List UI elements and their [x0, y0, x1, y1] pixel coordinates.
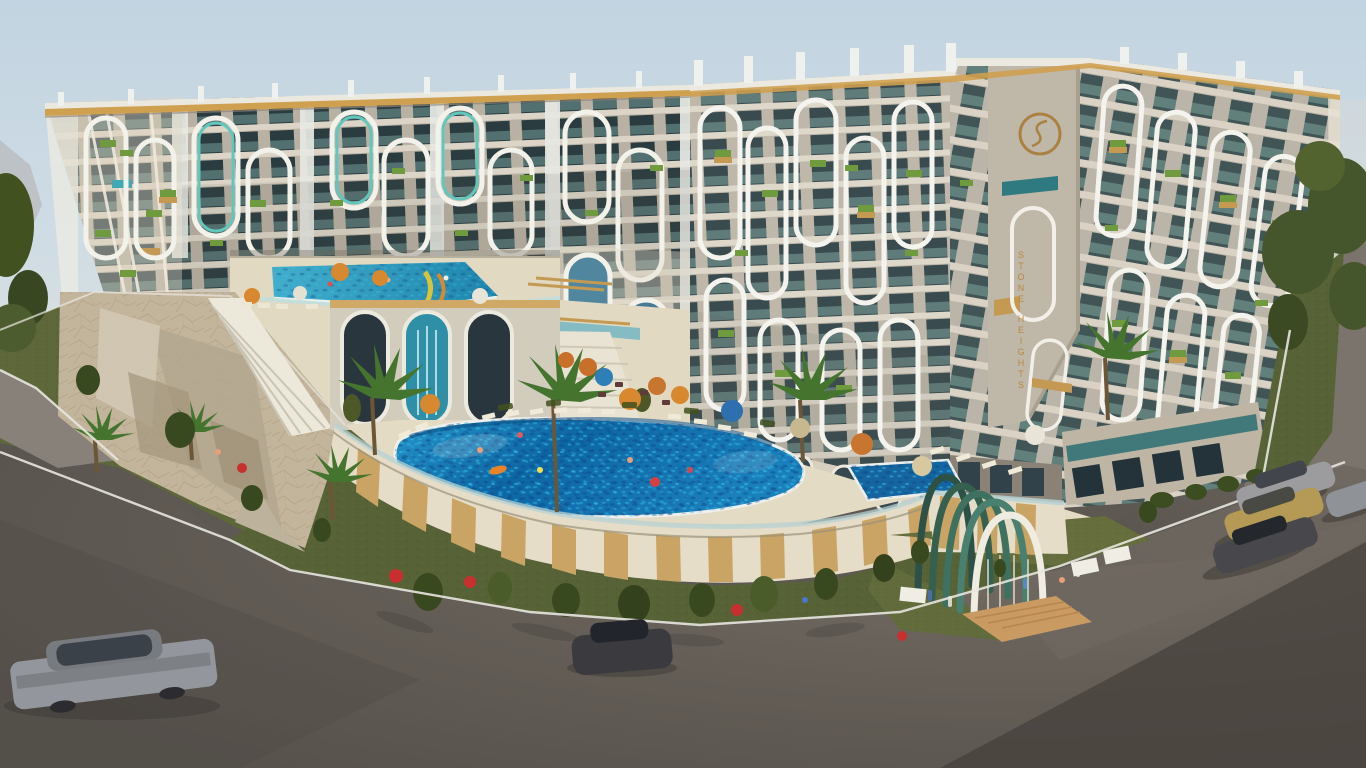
- svg-text:H: H: [1018, 314, 1025, 324]
- svg-text:S: S: [1018, 380, 1024, 390]
- svg-text:T: T: [1018, 261, 1024, 271]
- svg-text:T: T: [1018, 369, 1024, 379]
- svg-text:O: O: [1017, 272, 1024, 282]
- svg-text:E: E: [1018, 294, 1024, 304]
- svg-text:G: G: [1017, 347, 1024, 357]
- svg-text:N: N: [1018, 283, 1025, 293]
- svg-text:E: E: [1018, 325, 1024, 335]
- svg-text:S: S: [1018, 250, 1024, 260]
- svg-text:I: I: [1020, 336, 1023, 346]
- svg-text:H: H: [1018, 358, 1025, 368]
